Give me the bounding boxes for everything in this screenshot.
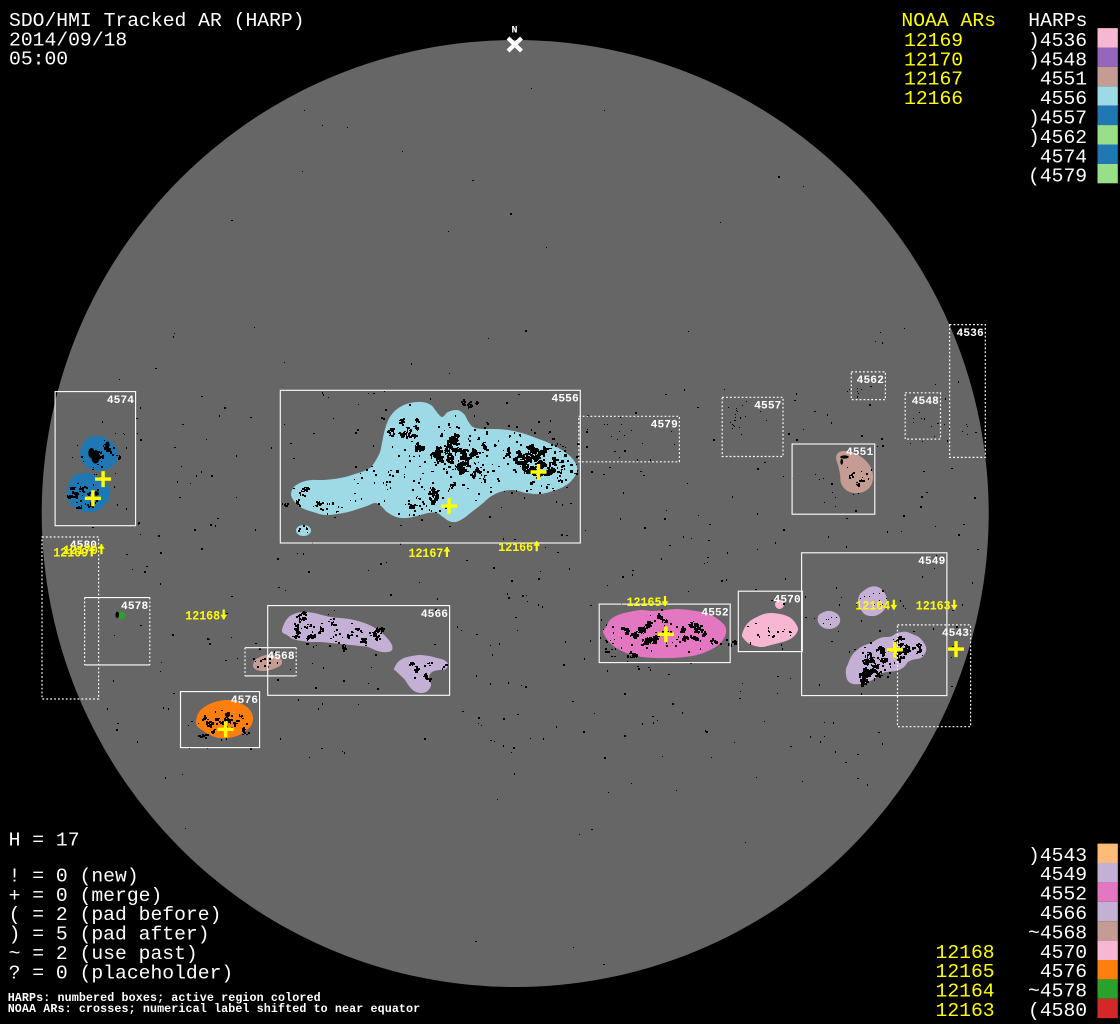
svg-text:HARPs: HARPs bbox=[1028, 10, 1087, 32]
svg-text:4566: 4566 bbox=[421, 609, 448, 621]
svg-text:NOAA ARs: NOAA ARs bbox=[901, 10, 996, 32]
svg-text:05:00: 05:00 bbox=[9, 49, 68, 71]
svg-text:4568: 4568 bbox=[267, 651, 294, 663]
svg-text:12164: 12164 bbox=[855, 599, 890, 614]
svg-text:4548: 4548 bbox=[912, 396, 939, 408]
svg-text:NOAA ARs: crosses; numerical l: NOAA ARs: crosses; numerical label shift… bbox=[8, 1002, 421, 1016]
svg-text:(4580: (4580 bbox=[1028, 1000, 1087, 1022]
svg-text:4579: 4579 bbox=[651, 420, 678, 432]
svg-text:4576: 4576 bbox=[231, 695, 258, 707]
svg-text:(4579: (4579 bbox=[1028, 166, 1087, 188]
svg-text:12168: 12168 bbox=[185, 609, 220, 624]
svg-text:4570: 4570 bbox=[774, 594, 801, 606]
svg-text:4551: 4551 bbox=[846, 447, 873, 459]
svg-text:12167: 12167 bbox=[409, 546, 444, 561]
svg-text:N: N bbox=[511, 26, 517, 37]
svg-text:4578: 4578 bbox=[121, 601, 148, 613]
svg-text:12165: 12165 bbox=[627, 595, 662, 610]
svg-text:4574: 4574 bbox=[107, 395, 134, 407]
svg-text:? = 0 (placeholder): ? = 0 (placeholder) bbox=[9, 962, 234, 984]
svg-text:4549: 4549 bbox=[918, 556, 945, 568]
svg-text:4557: 4557 bbox=[754, 401, 781, 413]
svg-text:12166: 12166 bbox=[498, 541, 533, 556]
svg-text:H = 17: H = 17 bbox=[9, 830, 80, 852]
svg-text:12163: 12163 bbox=[936, 1000, 995, 1022]
svg-text:4543: 4543 bbox=[942, 628, 969, 640]
svg-text:12170: 12170 bbox=[63, 544, 98, 559]
svg-text:4556: 4556 bbox=[552, 394, 579, 406]
svg-text:4562: 4562 bbox=[857, 375, 884, 387]
svg-text:12163: 12163 bbox=[916, 599, 951, 614]
svg-text:4552: 4552 bbox=[701, 607, 728, 619]
svg-text:12166: 12166 bbox=[904, 88, 963, 110]
svg-text:4536: 4536 bbox=[957, 328, 984, 340]
